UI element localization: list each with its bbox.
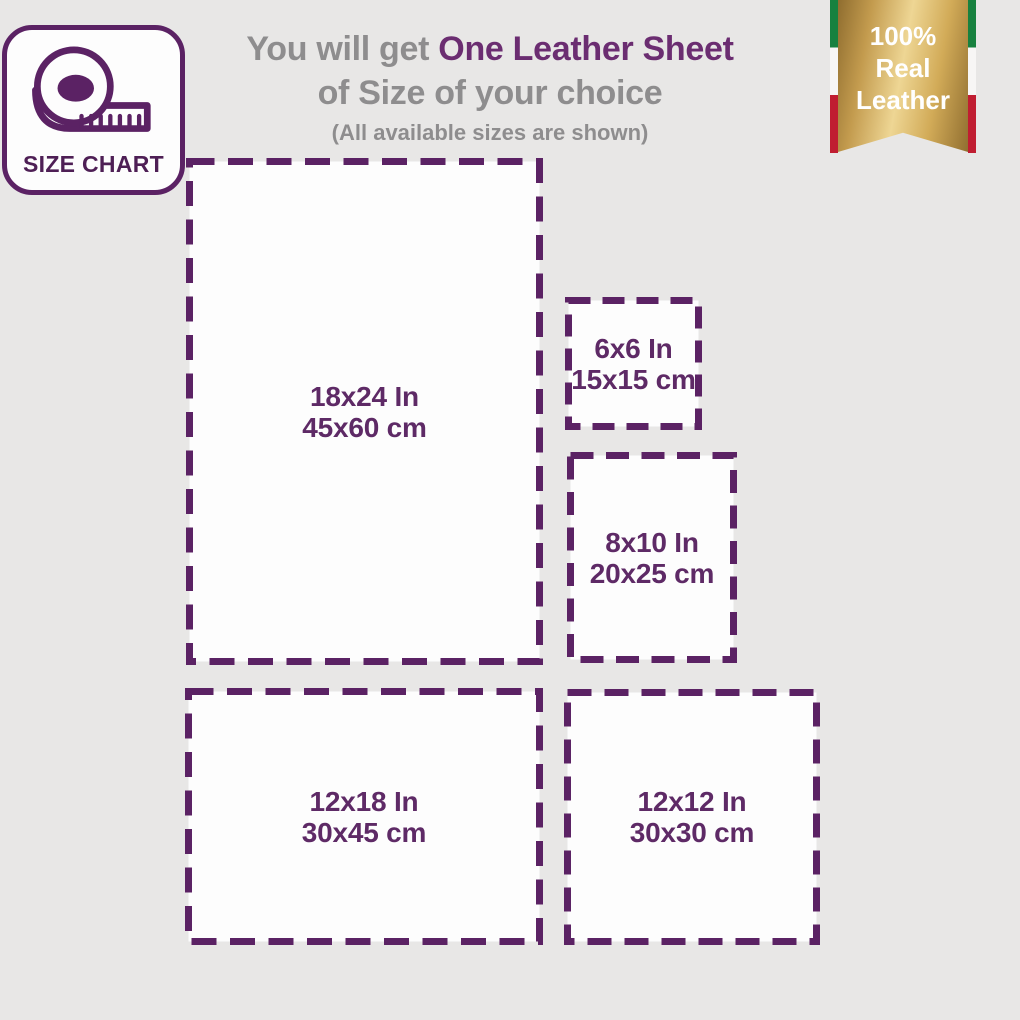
size-cm: 20x25 cm [590, 558, 715, 589]
size-label: 6x6 In 15x15 cm [571, 333, 696, 395]
ribbon-line-3: Leather [856, 84, 950, 116]
size-box-12x18: 12x18 In 30x45 cm [185, 688, 543, 945]
heading-note: (All available sizes are shown) [150, 120, 830, 146]
size-box-6x6: 6x6 In 15x15 cm [565, 297, 702, 430]
size-label: 8x10 In 20x25 cm [590, 527, 715, 589]
heading-line2: of Size of your choice [150, 72, 830, 114]
size-inches: 12x18 In [302, 786, 427, 817]
size-inches: 12x12 In [630, 786, 755, 817]
size-cm: 30x30 cm [630, 817, 755, 848]
size-box-18x24: 18x24 In 45x60 cm [186, 158, 543, 665]
size-label: 18x24 In 45x60 cm [302, 381, 427, 443]
size-box-8x10: 8x10 In 20x25 cm [567, 452, 737, 663]
measuring-tape-icon [29, 46, 159, 147]
size-cm: 45x60 cm [302, 412, 427, 443]
size-cm: 15x15 cm [571, 364, 696, 395]
heading-highlight: One Leather Sheet [438, 30, 733, 68]
flag-stripe-right [968, 0, 976, 153]
flag-stripe-left [830, 0, 838, 153]
ribbon-line-2: Real [876, 52, 931, 84]
real-leather-ribbon: 100% Real Leather [830, 0, 976, 165]
size-label: 12x18 In 30x45 cm [302, 786, 427, 848]
ribbon-line-1: 100% [870, 20, 937, 52]
size-box-12x12: 12x12 In 30x30 cm [564, 689, 820, 945]
heading-prefix: You will get [246, 30, 438, 68]
size-cm: 30x45 cm [302, 817, 427, 848]
heading-line1: You will get One Leather Sheet [150, 26, 830, 72]
size-label: 12x12 In 30x30 cm [630, 786, 755, 848]
size-inches: 18x24 In [302, 381, 427, 412]
size-chart-infographic: SIZE CHART You will get One Leather Shee… [0, 0, 1020, 1020]
size-inches: 8x10 In [590, 527, 715, 558]
size-inches: 6x6 In [571, 333, 696, 364]
heading: You will get One Leather Sheet of Size o… [150, 26, 830, 146]
gold-banner: 100% Real Leather [838, 0, 968, 160]
badge-label: SIZE CHART [23, 151, 164, 178]
